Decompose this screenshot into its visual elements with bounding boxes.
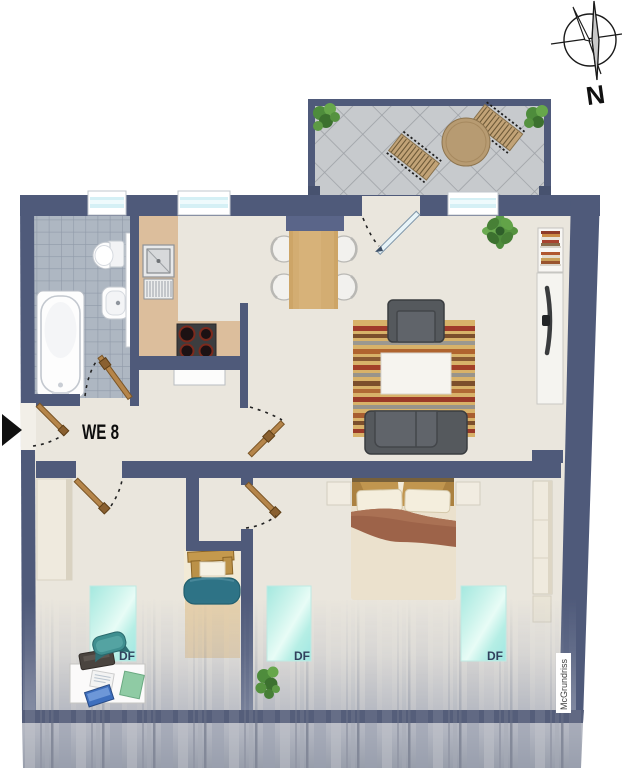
svg-text:WE 8: WE 8: [82, 421, 119, 444]
svg-text:DF: DF: [294, 649, 310, 663]
svg-text:DF: DF: [487, 649, 503, 663]
svg-text:McGrundriss: McGrundriss: [559, 658, 569, 710]
